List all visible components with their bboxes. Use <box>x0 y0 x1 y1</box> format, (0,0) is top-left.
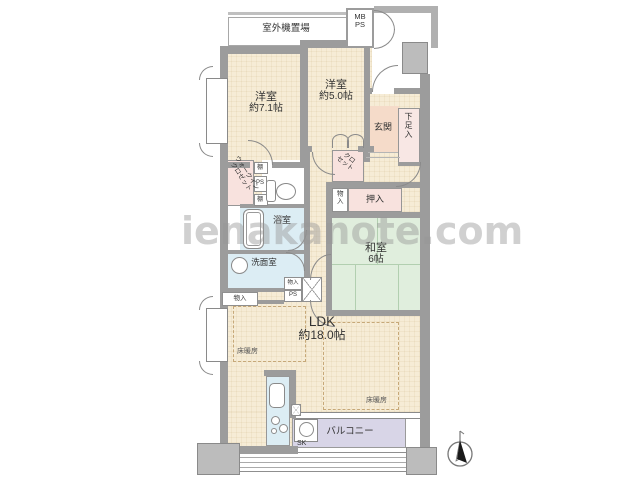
room-name: LDK <box>298 314 345 329</box>
entrance-door-arc <box>372 65 398 92</box>
balcony-label: バルコニー <box>326 427 373 438</box>
meter-box-door-arc <box>374 29 395 49</box>
toilet-tank <box>266 180 276 202</box>
kitchen-sink <box>269 383 285 408</box>
shoe-cabinet-label: 下足入 <box>403 112 412 139</box>
storage-label: 物入 <box>287 280 298 286</box>
storage-label: 物入 <box>335 190 342 205</box>
window <box>206 78 228 144</box>
sliding-glass-door <box>296 412 420 419</box>
corridor-edge <box>431 6 438 48</box>
entrance-step-line <box>366 157 400 158</box>
railing-end-block <box>197 443 240 475</box>
window <box>206 308 228 362</box>
slop-sink-bowl <box>299 422 314 437</box>
ps-label: PS <box>354 21 365 29</box>
meter-box-door-arc <box>374 10 395 30</box>
wall-segment <box>300 40 308 162</box>
window-swing-arc <box>199 361 213 375</box>
railing-end-block <box>406 447 437 475</box>
meter-box-label: MB PS <box>354 13 365 30</box>
parapet-line <box>228 12 350 15</box>
window-swing-arc <box>199 296 213 310</box>
window-swing-arc <box>199 66 213 80</box>
western-room2-label: 洋室 約5.0帖 <box>319 79 353 103</box>
room-size: 約18.0帖 <box>298 329 345 342</box>
washroom-label: 洗面室 <box>251 258 277 268</box>
stove-burner <box>271 428 277 434</box>
washer-pan <box>302 277 322 302</box>
room-size: 6帖 <box>365 254 387 265</box>
entrance-step-line <box>368 152 398 153</box>
pillar <box>402 42 428 74</box>
entrance-label: 玄関 <box>374 122 392 132</box>
wall-segment <box>240 204 310 208</box>
shelf-label: 棚 <box>257 165 263 172</box>
western-room1-label: 洋室 約7.1帖 <box>249 91 283 115</box>
watermark: ienakanote.com <box>181 209 523 253</box>
room-size: 約7.1帖 <box>249 103 283 114</box>
floor-heating-label: 床暖房 <box>366 397 387 405</box>
stove-burner <box>279 424 288 433</box>
pipe-space-box <box>291 404 301 416</box>
shelf-label: 棚 <box>257 197 263 204</box>
balcony-railing <box>240 452 416 472</box>
folding-door-arc <box>347 134 364 148</box>
wall-segment <box>420 74 430 448</box>
room-size: 約5.0帖 <box>319 91 353 102</box>
wall-segment <box>364 40 370 162</box>
wall-segment <box>364 88 372 94</box>
room-name: 洋室 <box>319 79 353 91</box>
ps-label: PS <box>256 180 264 187</box>
tatami-line <box>355 264 356 310</box>
washbasin <box>231 257 248 274</box>
stove-burner <box>271 416 280 425</box>
floor-heating-label: 床暖房 <box>237 348 258 356</box>
north-compass-icon <box>444 428 476 470</box>
ldk-label: LDK 約18.0帖 <box>298 314 345 343</box>
tatami-line <box>398 264 399 310</box>
oshiire-label: 押入 <box>366 194 384 204</box>
ps-label: PS <box>289 292 297 299</box>
slop-sink-label: SK <box>297 440 306 448</box>
outdoor-unit-label: 室外機置場 <box>262 24 310 35</box>
toilet-bowl <box>276 183 296 200</box>
storage-label: 物入 <box>234 295 247 302</box>
floor-plan: 室外機置場 MB PS <box>0 0 640 480</box>
wall-segment <box>220 46 308 54</box>
room-name: 洋室 <box>249 91 283 103</box>
window-swing-arc <box>199 143 213 157</box>
